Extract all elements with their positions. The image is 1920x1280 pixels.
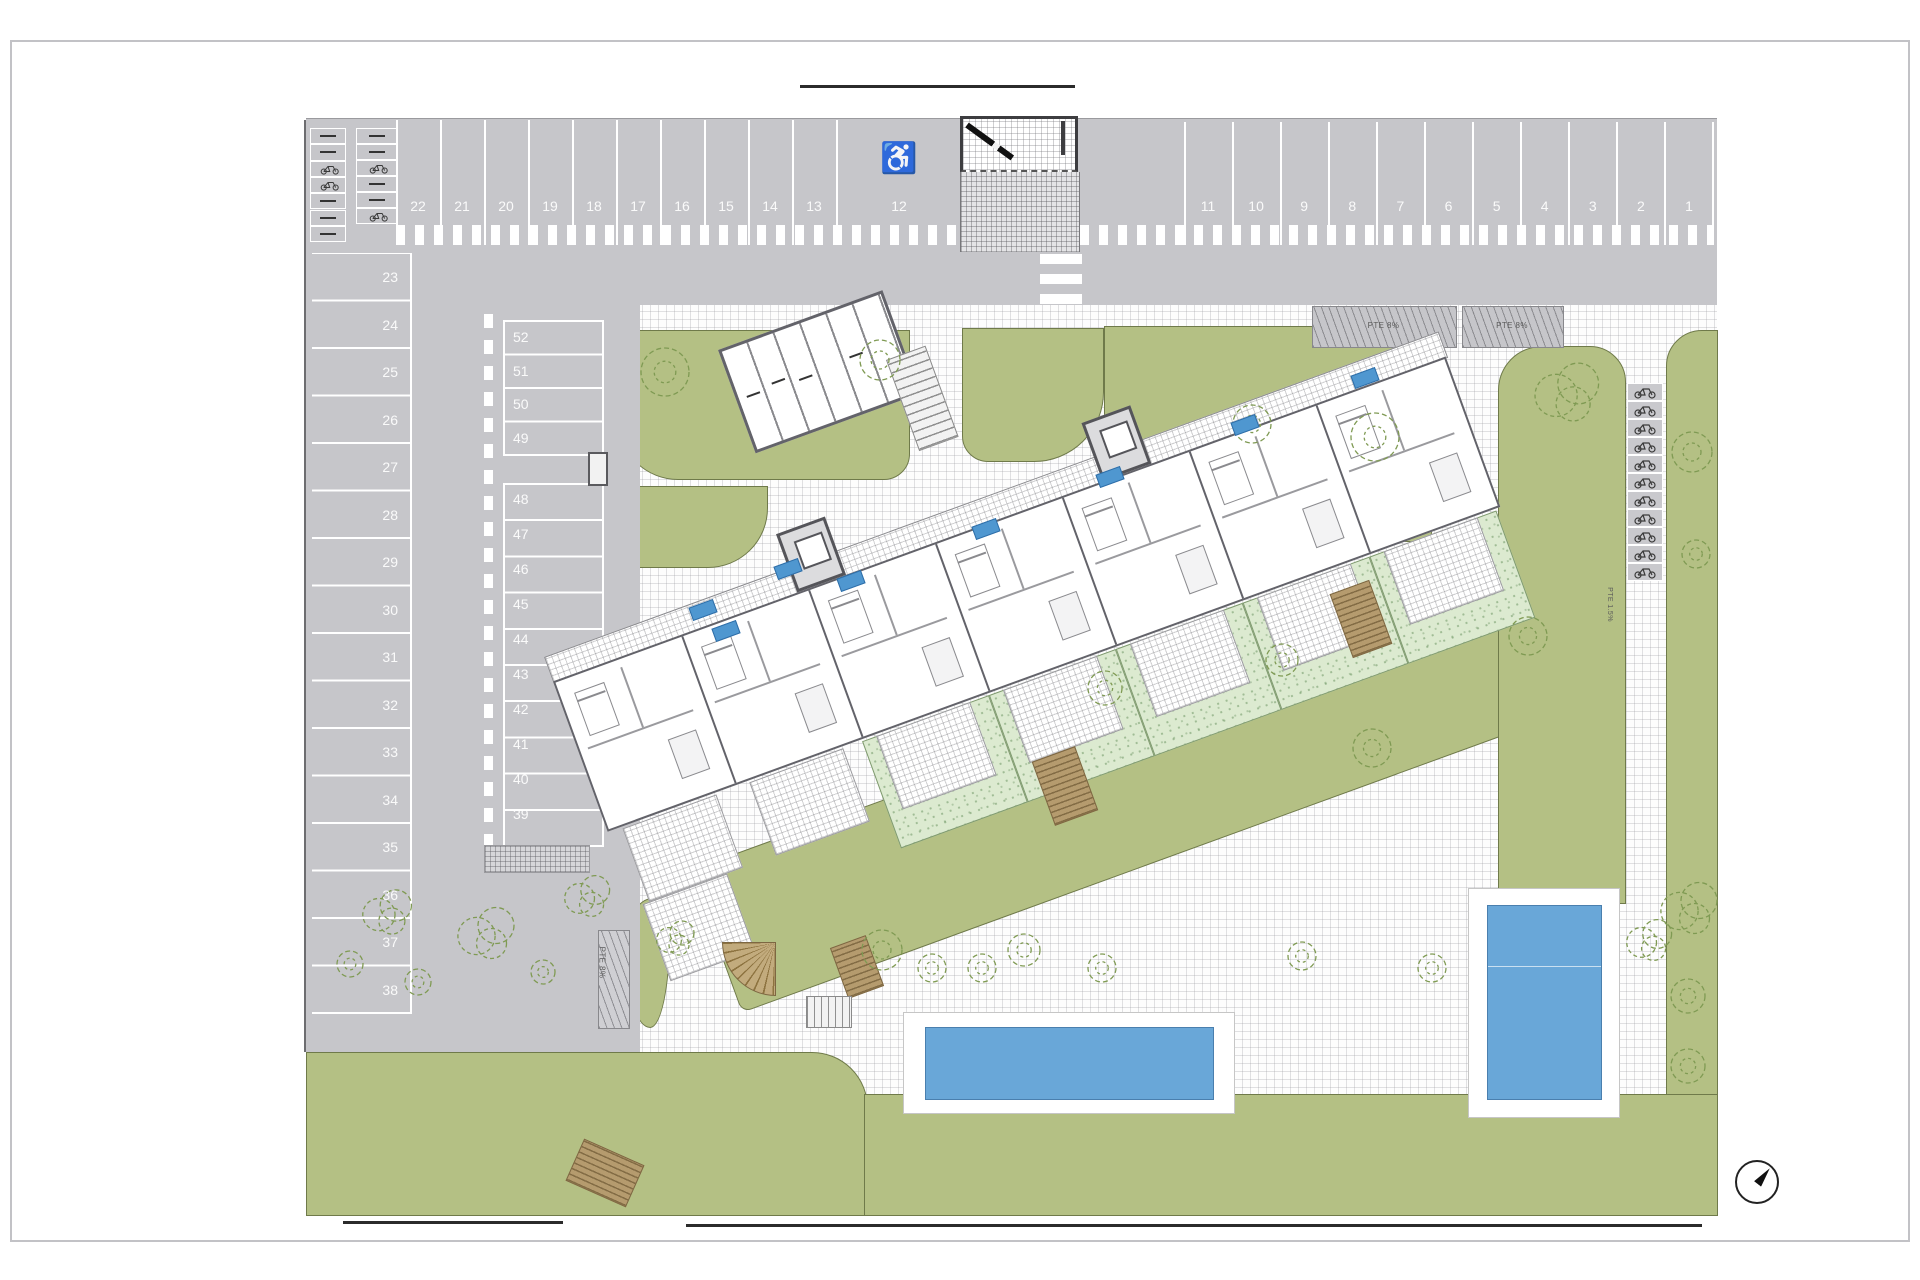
parking-space-number-41: 41	[513, 737, 553, 751]
parking-space-number-24: 24	[312, 318, 398, 332]
parking-space-number-36: 36	[312, 888, 398, 902]
parking-space-number-15: 15	[704, 199, 748, 213]
parking-space-number-45: 45	[513, 597, 553, 611]
parking-space-number-28: 28	[312, 508, 398, 522]
parking-space-number-39: 39	[513, 807, 553, 821]
parking-space-number-40: 40	[513, 772, 553, 786]
parking-space-number-18: 18	[572, 199, 616, 213]
parking-space-number-35: 35	[312, 840, 398, 854]
parking-space-number-19: 19	[528, 199, 572, 213]
parking-space-number-42: 42	[513, 702, 553, 716]
parking-space-number-8: 8	[1328, 199, 1376, 213]
parking-space-number-46: 46	[513, 562, 553, 576]
parking-space-number-23: 23	[312, 270, 398, 284]
parking-space-number-16: 16	[660, 199, 704, 213]
parking-space-number-27: 27	[312, 460, 398, 474]
parking-space-number-34: 34	[312, 793, 398, 807]
parking-space-number-9: 9	[1280, 199, 1328, 213]
parking-space-number-25: 25	[312, 365, 398, 379]
parking-space-number-44: 44	[513, 632, 553, 646]
parking-space-number-2: 2	[1617, 199, 1665, 213]
parking-space-number-11: 11	[1184, 199, 1232, 213]
parking-space-number-5: 5	[1473, 199, 1521, 213]
site-plan: ♿ 12 PTE 8% PTE 8% PTE 8% PTE 1.5%	[0, 0, 1920, 1280]
parking-space-number-29: 29	[312, 555, 398, 569]
parking-space-number-49: 49	[513, 431, 553, 445]
parking-space-number-52: 52	[513, 330, 553, 344]
parking-space-number-22: 22	[396, 199, 440, 213]
drawing-frame	[10, 40, 1910, 1242]
parking-space-number-21: 21	[440, 199, 484, 213]
parking-space-number-10: 10	[1232, 199, 1280, 213]
parking-space-number-7: 7	[1376, 199, 1424, 213]
parking-space-number-37: 37	[312, 935, 398, 949]
parking-space-number-3: 3	[1569, 199, 1617, 213]
parking-space-number-4: 4	[1521, 199, 1569, 213]
parking-space-number-48: 48	[513, 492, 553, 506]
parking-space-number-6: 6	[1425, 199, 1473, 213]
parking-space-number-20: 20	[484, 199, 528, 213]
parking-space-number-1: 1	[1665, 199, 1713, 213]
parking-space-number-30: 30	[312, 603, 398, 617]
parking-space-number-13: 13	[792, 199, 836, 213]
parking-space-number-43: 43	[513, 667, 553, 681]
parking-space-number-31: 31	[312, 650, 398, 664]
parking-space-number-47: 47	[513, 527, 553, 541]
parking-space-number-32: 32	[312, 698, 398, 712]
parking-space-number-17: 17	[616, 199, 660, 213]
parking-space-number-26: 26	[312, 413, 398, 427]
parking-space-number-38: 38	[312, 983, 398, 997]
parking-space-number-51: 51	[513, 364, 553, 378]
parking-space-number-33: 33	[312, 745, 398, 759]
parking-space-number-50: 50	[513, 397, 553, 411]
parking-space-number-14: 14	[748, 199, 792, 213]
